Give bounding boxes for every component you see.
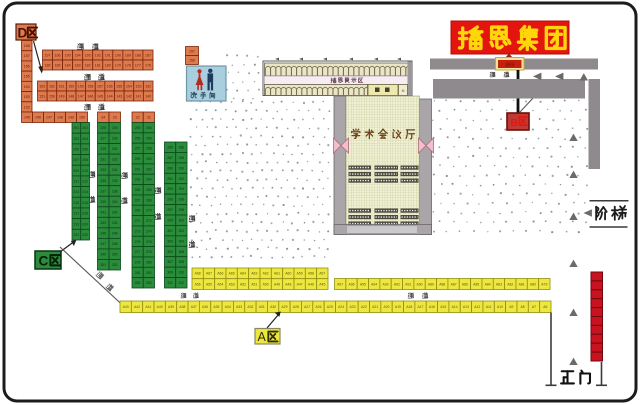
svg-text:A19: A19 [395, 305, 401, 309]
svg-text:A55: A55 [206, 282, 212, 286]
svg-text:A68: A68 [195, 272, 201, 276]
svg-text:D: D [18, 26, 28, 41]
svg-text:A85: A85 [473, 282, 479, 286]
svg-text:201: 201 [74, 126, 80, 130]
svg-text:153: 153 [24, 95, 30, 99]
svg-text:277: 277 [135, 250, 141, 254]
svg-text:248: 248 [112, 242, 118, 246]
svg-text:149: 149 [59, 94, 65, 98]
svg-text:290: 290 [179, 166, 185, 170]
svg-text:A82: A82 [507, 282, 513, 286]
svg-text:209: 209 [74, 169, 80, 173]
svg-text:150: 150 [79, 116, 85, 120]
svg-text:289: 289 [167, 166, 173, 170]
svg-text:227: 227 [100, 137, 106, 141]
svg-text:273: 273 [135, 229, 141, 233]
svg-text:240: 240 [112, 200, 118, 204]
svg-text:306: 306 [179, 250, 185, 254]
svg-text:A8: A8 [521, 305, 525, 309]
svg-text:251: 251 [100, 263, 106, 267]
svg-text:213: 213 [74, 190, 80, 194]
svg-text:252: 252 [112, 263, 118, 267]
svg-text:228: 228 [112, 137, 118, 141]
svg-text:141: 141 [136, 94, 142, 98]
svg-text:148: 148 [68, 94, 74, 98]
svg-text:284: 284 [146, 281, 152, 285]
svg-text:186: 186 [45, 63, 51, 67]
svg-text:A27: A27 [304, 305, 310, 309]
svg-text:182: 182 [85, 63, 91, 67]
svg-text:195: 195 [65, 53, 71, 57]
svg-text:222: 222 [82, 233, 88, 237]
svg-text:220: 220 [82, 222, 88, 226]
svg-text:266: 266 [146, 188, 152, 192]
svg-text:150: 150 [49, 94, 55, 98]
svg-text:A64: A64 [240, 272, 246, 276]
svg-text:270: 270 [146, 209, 152, 213]
svg-text:232: 232 [112, 158, 118, 162]
svg-text:A10: A10 [497, 305, 503, 309]
svg-text:187: 187 [145, 53, 151, 57]
svg-text:158: 158 [24, 44, 30, 48]
svg-text:162: 162 [49, 84, 55, 88]
svg-text:229: 229 [100, 147, 106, 151]
svg-text:158: 158 [87, 84, 93, 88]
svg-text:235: 235 [100, 179, 106, 183]
svg-text:A21: A21 [372, 305, 378, 309]
svg-text:255: 255 [135, 136, 141, 140]
svg-text:257: 257 [135, 147, 141, 151]
svg-text:A16: A16 [429, 305, 435, 309]
svg-text:230: 230 [112, 147, 118, 151]
svg-text:158: 158 [189, 58, 195, 62]
svg-text:218: 218 [82, 212, 88, 216]
svg-text:A14: A14 [452, 305, 458, 309]
svg-text:152: 152 [24, 105, 30, 109]
svg-text:262: 262 [146, 167, 152, 171]
svg-text:245: 245 [100, 231, 106, 235]
svg-text:294: 294 [179, 187, 185, 191]
svg-text:263: 263 [135, 178, 141, 182]
svg-text:281: 281 [135, 271, 141, 275]
svg-text:189: 189 [125, 53, 131, 57]
svg-text:A54: A54 [217, 282, 223, 286]
svg-text:A92: A92 [394, 282, 400, 286]
svg-text:191: 191 [105, 53, 111, 57]
svg-text:A84: A84 [485, 282, 491, 286]
svg-text:254: 254 [146, 126, 152, 130]
svg-text:177: 177 [135, 63, 141, 67]
svg-text:219: 219 [74, 222, 80, 226]
svg-text:A29: A29 [281, 305, 287, 309]
svg-text:204: 204 [82, 137, 88, 141]
svg-text:278: 278 [146, 250, 152, 254]
svg-text:297: 297 [167, 208, 173, 212]
svg-text:A40: A40 [157, 305, 163, 309]
svg-text:293: 293 [167, 187, 173, 191]
svg-text:148: 148 [57, 116, 63, 120]
svg-text:159: 159 [78, 84, 84, 88]
svg-text:A31: A31 [259, 305, 265, 309]
svg-text:307: 307 [167, 260, 173, 264]
svg-text:142: 142 [126, 94, 132, 98]
svg-text:295: 295 [167, 198, 173, 202]
svg-text:154: 154 [126, 84, 132, 88]
svg-text:234: 234 [112, 168, 118, 172]
svg-text:242: 242 [112, 210, 118, 214]
svg-text:181: 181 [95, 63, 101, 67]
svg-text:A32: A32 [247, 305, 253, 309]
svg-text:215: 215 [74, 201, 80, 205]
svg-text:A25: A25 [327, 305, 333, 309]
svg-text:A89: A89 [428, 282, 434, 286]
svg-text:217: 217 [74, 212, 80, 216]
svg-text:A26: A26 [315, 305, 321, 309]
svg-text:M: M [402, 89, 405, 93]
svg-text:149: 149 [68, 116, 74, 120]
svg-text:300: 300 [179, 219, 185, 223]
svg-text:146: 146 [35, 116, 41, 120]
svg-text:203: 203 [74, 137, 80, 141]
svg-text:A: A [258, 330, 267, 344]
svg-text:156: 156 [107, 84, 113, 88]
svg-text:305: 305 [167, 250, 173, 254]
svg-text:206: 206 [82, 148, 88, 152]
svg-text:A18: A18 [406, 305, 412, 309]
svg-text:253: 253 [135, 126, 141, 130]
svg-text:A61: A61 [274, 272, 280, 276]
svg-text:296: 296 [179, 198, 185, 202]
svg-text:197: 197 [45, 53, 51, 57]
svg-text:A24: A24 [338, 305, 344, 309]
svg-text:237: 237 [100, 189, 106, 193]
svg-text:161: 161 [59, 84, 65, 88]
svg-text:271: 271 [135, 219, 141, 223]
svg-text:239: 239 [100, 200, 106, 204]
svg-text:179: 179 [115, 63, 121, 67]
svg-text:A15: A15 [440, 305, 446, 309]
svg-text:145: 145 [97, 94, 103, 98]
svg-text:A96: A96 [348, 282, 354, 286]
svg-text:183: 183 [75, 63, 81, 67]
svg-text:A58: A58 [308, 272, 314, 276]
svg-text:267: 267 [135, 198, 141, 202]
svg-text:A83: A83 [496, 282, 502, 286]
svg-text:190: 190 [115, 53, 121, 57]
svg-text:221: 221 [74, 233, 80, 237]
svg-text:A65: A65 [229, 272, 235, 276]
svg-text:249: 249 [100, 253, 106, 257]
svg-text:C: C [39, 254, 49, 269]
svg-text:291: 291 [167, 177, 173, 181]
svg-text:A13: A13 [463, 305, 469, 309]
svg-text:280: 280 [146, 260, 152, 264]
svg-text:A36: A36 [202, 305, 208, 309]
svg-text:311: 311 [167, 281, 173, 285]
svg-text:A95: A95 [360, 282, 366, 286]
svg-text:A38: A38 [179, 305, 185, 309]
svg-text:211: 211 [74, 180, 80, 184]
svg-text:258: 258 [146, 147, 152, 151]
svg-text:292: 292 [179, 177, 185, 181]
svg-text:A79: A79 [541, 282, 547, 286]
svg-text:A7: A7 [532, 305, 536, 309]
svg-text:287: 287 [167, 156, 173, 160]
svg-text:A97: A97 [337, 282, 343, 286]
svg-text:226: 226 [112, 126, 118, 130]
svg-text:163: 163 [39, 84, 45, 88]
svg-text:216: 216 [82, 201, 88, 205]
svg-text:A9: A9 [509, 305, 513, 309]
svg-text:A42: A42 [134, 305, 140, 309]
svg-text:283: 283 [135, 281, 141, 285]
svg-text:A66: A66 [217, 272, 223, 276]
svg-text:146: 146 [87, 94, 93, 98]
svg-text:272: 272 [146, 219, 152, 223]
svg-text:A59: A59 [297, 272, 303, 276]
svg-text:151: 151 [39, 94, 45, 98]
svg-text:A63: A63 [251, 272, 257, 276]
svg-text:A45: A45 [319, 282, 325, 286]
svg-text:A81: A81 [519, 282, 525, 286]
svg-text:A88: A88 [439, 282, 445, 286]
svg-text:246: 246 [112, 231, 118, 235]
svg-text:369: 369 [505, 63, 514, 69]
svg-text:147: 147 [78, 94, 84, 98]
svg-text:A39: A39 [168, 305, 174, 309]
svg-text:33: 33 [113, 116, 117, 120]
svg-text:243: 243 [100, 221, 106, 225]
svg-text:285: 285 [167, 146, 173, 150]
svg-text:A47: A47 [297, 282, 303, 286]
svg-text:196: 196 [55, 53, 61, 57]
svg-text:205: 205 [74, 148, 80, 152]
svg-text:156: 156 [24, 64, 30, 68]
svg-text:299: 299 [167, 219, 173, 223]
svg-text:288: 288 [179, 156, 185, 160]
svg-text:A93: A93 [383, 282, 389, 286]
svg-text:176: 176 [145, 63, 151, 67]
svg-text:180: 180 [105, 63, 111, 67]
svg-text:279: 279 [135, 260, 141, 264]
svg-text:A50: A50 [263, 282, 269, 286]
svg-text:260: 260 [146, 157, 152, 161]
svg-text:236: 236 [112, 179, 118, 183]
svg-text:A49: A49 [274, 282, 280, 286]
svg-text:247: 247 [100, 242, 106, 246]
svg-text:202: 202 [82, 126, 88, 130]
svg-text:310: 310 [179, 271, 185, 275]
svg-text:A20: A20 [384, 305, 390, 309]
svg-text:225: 225 [100, 126, 106, 130]
svg-text:A28: A28 [293, 305, 299, 309]
svg-text:233: 233 [100, 168, 106, 172]
svg-text:185: 185 [55, 63, 61, 67]
svg-text:157: 157 [189, 49, 195, 53]
svg-text:157: 157 [24, 54, 30, 58]
svg-text:143: 143 [116, 94, 122, 98]
svg-text:208: 208 [82, 158, 88, 162]
svg-text:193: 193 [85, 53, 91, 57]
svg-text:32: 32 [136, 116, 140, 120]
svg-text:A80: A80 [530, 282, 536, 286]
svg-text:312: 312 [179, 281, 185, 285]
svg-text:275: 275 [135, 240, 141, 244]
svg-text:A34: A34 [225, 305, 231, 309]
svg-text:301: 301 [167, 229, 173, 233]
svg-text:A87: A87 [451, 282, 457, 286]
svg-text:231: 231 [100, 158, 106, 162]
svg-text:157: 157 [97, 84, 103, 88]
svg-text:B: B [511, 118, 518, 129]
svg-text:A22: A22 [361, 305, 367, 309]
svg-text:A94: A94 [371, 282, 377, 286]
svg-text:264: 264 [146, 178, 152, 182]
svg-text:A62: A62 [263, 272, 269, 276]
svg-text:A37: A37 [191, 305, 197, 309]
svg-text:298: 298 [179, 208, 185, 212]
svg-text:178: 178 [125, 63, 131, 67]
svg-text:261: 261 [135, 167, 141, 171]
svg-text:A33: A33 [236, 305, 242, 309]
svg-text:238: 238 [112, 189, 118, 193]
svg-text:147: 147 [46, 116, 52, 120]
svg-text:A60: A60 [285, 272, 291, 276]
svg-text:34: 34 [101, 116, 105, 120]
svg-text:184: 184 [65, 63, 71, 67]
svg-text:145: 145 [24, 116, 30, 120]
svg-text:188: 188 [135, 53, 141, 57]
svg-text:A91: A91 [405, 282, 411, 286]
svg-text:194: 194 [75, 53, 81, 57]
svg-text:A56: A56 [195, 282, 201, 286]
svg-text:241: 241 [100, 210, 106, 214]
svg-text:A35: A35 [213, 305, 219, 309]
svg-text:A53: A53 [229, 282, 235, 286]
svg-text:268: 268 [146, 198, 152, 202]
svg-text:A17: A17 [418, 305, 424, 309]
svg-text:A11: A11 [486, 305, 492, 309]
svg-text:31: 31 [147, 116, 151, 120]
svg-text:A67: A67 [206, 272, 212, 276]
svg-text:286: 286 [179, 146, 185, 150]
svg-text:A41: A41 [145, 305, 151, 309]
svg-text:259: 259 [135, 157, 141, 161]
svg-text:282: 282 [146, 271, 152, 275]
svg-text:A12: A12 [474, 305, 480, 309]
svg-text:A51: A51 [251, 282, 257, 286]
svg-text:A46: A46 [308, 282, 314, 286]
svg-text:210: 210 [82, 169, 88, 173]
svg-text:A52: A52 [240, 282, 246, 286]
svg-text:A86: A86 [462, 282, 468, 286]
svg-text:302: 302 [179, 229, 185, 233]
svg-text:276: 276 [146, 240, 152, 244]
svg-text:308: 308 [179, 260, 185, 264]
svg-text:A43: A43 [123, 305, 129, 309]
svg-text:192: 192 [95, 53, 101, 57]
svg-text:214: 214 [82, 190, 88, 194]
svg-text:153: 153 [136, 84, 142, 88]
svg-text:A6: A6 [543, 305, 547, 309]
svg-text:152: 152 [145, 84, 151, 88]
svg-text:140: 140 [145, 94, 151, 98]
svg-text:309: 309 [167, 271, 173, 275]
svg-text:265: 265 [135, 188, 141, 192]
svg-text:256: 256 [146, 136, 152, 140]
svg-text:A57: A57 [319, 272, 325, 276]
svg-text:155: 155 [116, 84, 122, 88]
svg-text:244: 244 [112, 221, 118, 225]
svg-text:212: 212 [82, 180, 88, 184]
svg-text:144: 144 [107, 94, 113, 98]
svg-text:160: 160 [68, 84, 74, 88]
svg-text:250: 250 [112, 253, 118, 257]
svg-text:155: 155 [24, 75, 30, 79]
svg-text:A48: A48 [285, 282, 291, 286]
svg-text:207: 207 [74, 158, 80, 162]
svg-text:A30: A30 [270, 305, 276, 309]
svg-text:154: 154 [24, 85, 30, 89]
svg-text:303: 303 [167, 239, 173, 243]
svg-text:A90: A90 [417, 282, 423, 286]
svg-text:304: 304 [179, 239, 185, 243]
svg-text:274: 274 [146, 229, 152, 233]
svg-text:A23: A23 [349, 305, 355, 309]
svg-text:269: 269 [135, 209, 141, 213]
